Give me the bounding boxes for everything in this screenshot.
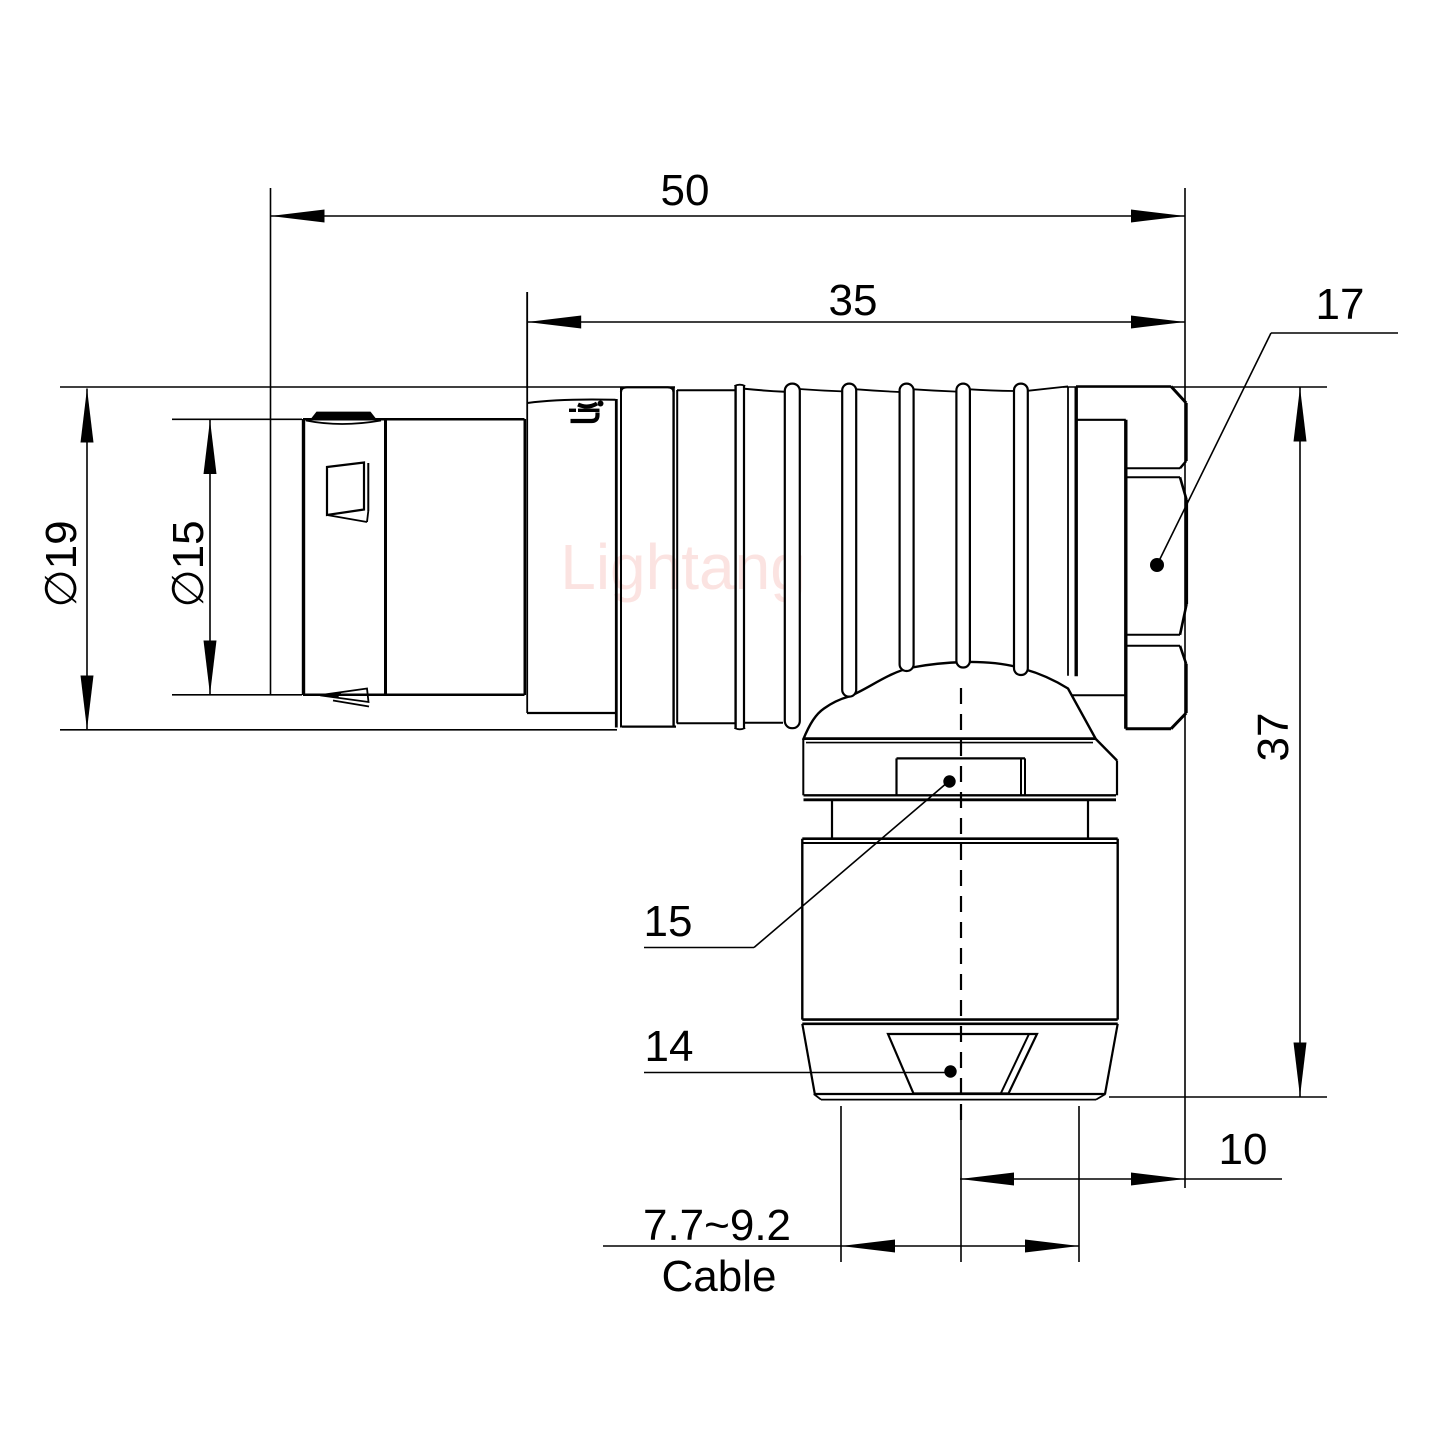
- svg-text:10: 10: [1219, 1125, 1268, 1174]
- svg-text:17: 17: [1316, 280, 1365, 329]
- svg-text:∅19: ∅19: [37, 520, 86, 607]
- svg-text:7.7~9.2: 7.7~9.2: [643, 1201, 791, 1250]
- svg-text:50: 50: [661, 166, 710, 215]
- svg-text:14: 14: [645, 1022, 694, 1071]
- svg-text:∅15: ∅15: [164, 520, 213, 607]
- svg-text:37: 37: [1249, 713, 1298, 762]
- svg-text:35: 35: [829, 276, 878, 325]
- svg-text:Lightang: Lightang: [560, 531, 806, 603]
- svg-text:Cable: Cable: [662, 1252, 777, 1301]
- svg-text:15: 15: [644, 897, 693, 946]
